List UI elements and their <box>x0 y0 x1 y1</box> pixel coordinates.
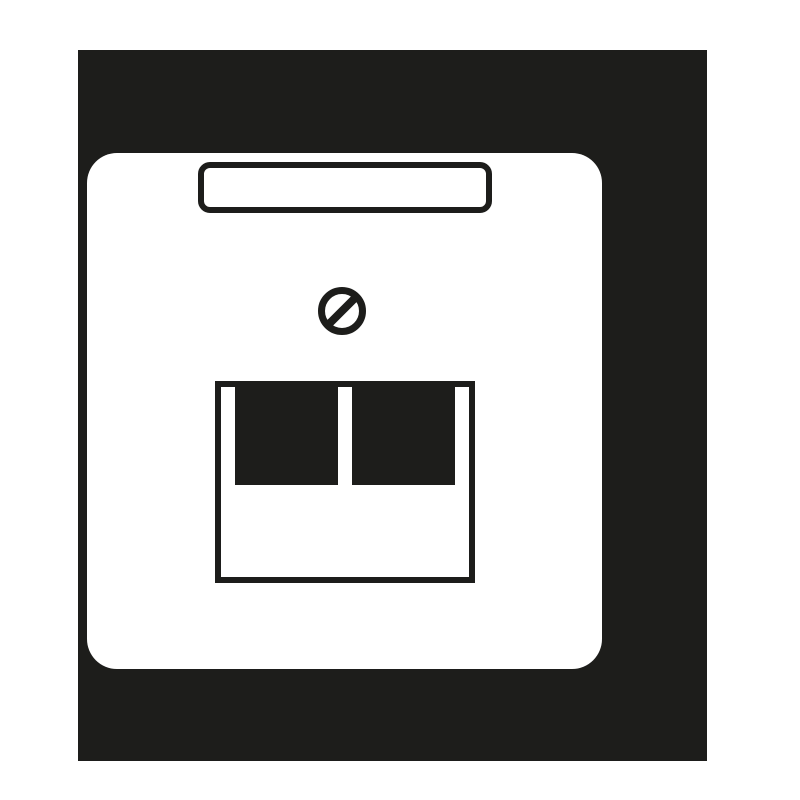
screw-head-icon <box>318 287 366 335</box>
port-opening-left <box>235 387 338 485</box>
outlet-pictogram <box>0 0 800 800</box>
screw-slot <box>324 293 359 328</box>
socket-frame <box>215 381 475 583</box>
label-window <box>198 162 492 213</box>
port-opening-right <box>352 387 455 485</box>
